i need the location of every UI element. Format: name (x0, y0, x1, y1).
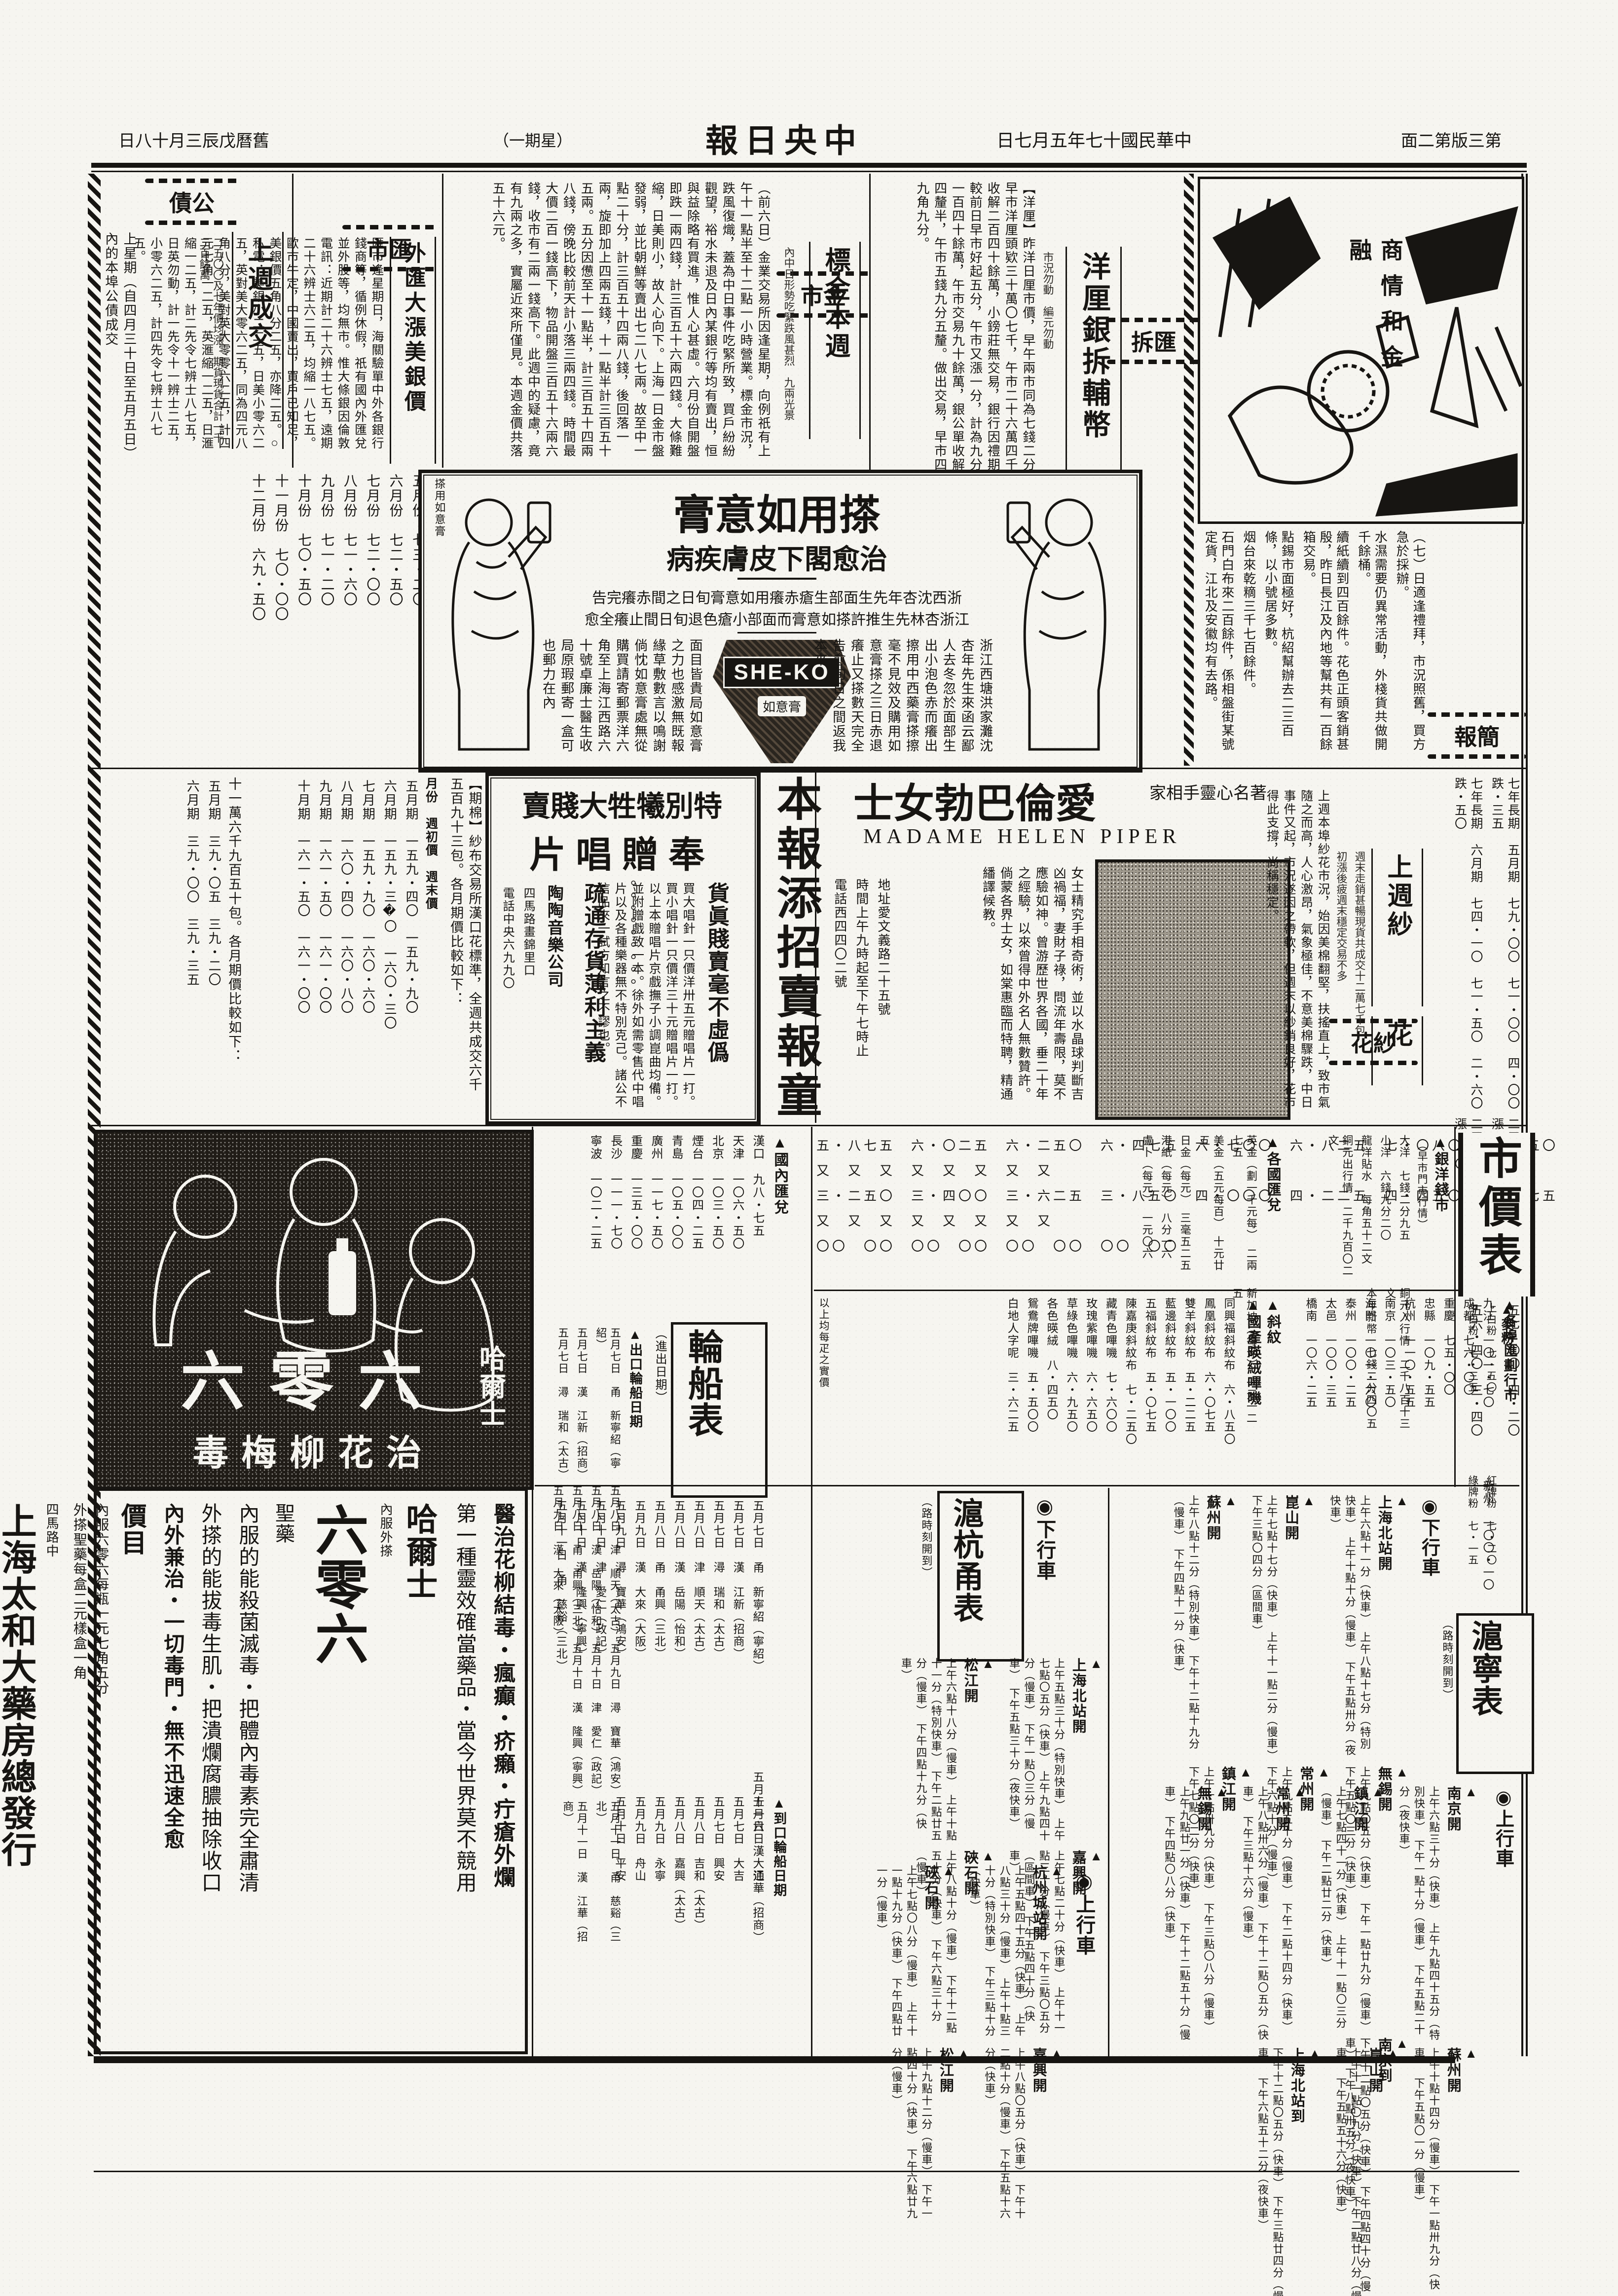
ships-header: 輪船表 (677, 1329, 726, 1477)
station-name: 硤石開 (920, 1865, 940, 2042)
ship-entry: 五月八日 漢 岳陽（怡和） (671, 1500, 686, 1766)
station-times: 上午六點三十分（快車） 上午九點四十五分（特別快車） 下午一點十分（慢車） 下午… (1396, 1786, 1441, 2042)
foreign-item: 港紙（每元） 八分一六 (1158, 1135, 1173, 1283)
qimian-row: 七月期 一五九・九〇 一六〇・六〇 (360, 779, 376, 1100)
huishi-body: 匯市逢星期日，海關驗單中外各銀行錢商等，循例休假，祇有國內外匯兌並外股等，均無市… (296, 237, 385, 459)
station-entry: ▲ 松江開 上午六點十八分（慢車） 上午十點十一分（特別快車） 下午二點廿五分（… (898, 1658, 994, 1845)
edition-label: 面二第版三第 (1401, 127, 1502, 151)
station-entry: ▲ 上海北站開 上午六點十一分（快車） 上午八點十七分（特別快車） 上午十點十分… (1327, 1495, 1408, 1761)
station-marker-icon: ▲ (1371, 1786, 1384, 2042)
station-times: 上午八點卅六分（慢車） 下午十二點〇五分（快車） 下午三點十六分（慢車） (1240, 1786, 1270, 2042)
section-header-gongzhai: 債公 (148, 179, 236, 225)
masthead-rule-thin (91, 171, 1527, 172)
footer-rule-thick (94, 2056, 1455, 2063)
silver-item: 龍洋貼水 每角五十二文 (1359, 1135, 1373, 1283)
shanghang-down-label: ◉下行車 (1031, 1495, 1058, 1623)
station-name: 無錫開 (1193, 1786, 1213, 2042)
flour-item: 紅牌粉 七・二〇 (1484, 1475, 1498, 1643)
taiho-brand-group: 哈爾士 內服外搽 六零六 聖藥 (270, 1503, 441, 1818)
paper-date: 日七月五年七十國民華中 (996, 126, 1192, 152)
station-entry: ▲ 南京開 上午六點三十分（快車） 上午九點四十五分（特別快車） 下午一點十分（… (1396, 1786, 1477, 2042)
silver-list: 大洋 七錢二分九五小洋 六錢九分二〇龍洋貼水 每角五十二文銅元出行情 二千九百〇… (1292, 1135, 1411, 1288)
qimian-table2: 五月期 三九・〇五 三九・二〇六月期 三九・〇〇 三九・三五 (148, 779, 222, 1115)
jianbao-list: （七）日適逢禮拜，市況照舊，買方急於採辦。水濕需要仍異常活動，外棧貨共做開千餘桶… (1200, 530, 1427, 762)
band-rule (91, 1125, 1527, 1126)
station-times: 上午八點〇五分（快車） 下午十二點十分（慢車） 下午五點十六分（快車） (982, 2047, 1027, 2225)
ship-entry: 五月八日 津 順天（太古） (691, 1500, 705, 1766)
record-sale-ad: 賣賤大牲犧別特 片唱贈奉 。。。。。。。。。 貨眞賤賣毫不虛僞 買大唱針一只價洋… (485, 773, 761, 1125)
masthead-rule-thick (91, 163, 1527, 168)
qimian-row2: 五月期 三九・〇五 三九・二〇 (205, 779, 222, 1100)
guonei-item: 漢口 九八・七五 (749, 1135, 765, 1297)
qimian-row: 八月期 一六〇・四〇 一六〇・八〇 (338, 779, 355, 1100)
cartoon-caption: 商情和金融 (1343, 238, 1406, 401)
jianbao-item: 續紙續到四百餘件。花色正頭客銷甚殷，昨日長江及內地等幫共有一百餘箱交易。 (1300, 530, 1350, 757)
gongzhai-left-note: 上星期（自四月三十日至五月五日）內的本埠公債成交 (101, 232, 138, 464)
sheko-left-column: 面目皆貴局如意膏之力也感激無既報緣草敷數言以鳴謝倘忱如意膏處無從購買請寄郵票洋六… (566, 638, 704, 764)
fabric-item: 藏青色嗶嘰 七・六〇〇 (1103, 1297, 1118, 1475)
station-name: 嘉興開 (1029, 2047, 1048, 2225)
ad-606-big-text: 六零六 (141, 1330, 486, 1423)
city-item: 忠縣 一〇九・五五 (1421, 1297, 1435, 1475)
ship-entry: 五月七日 大吉 (730, 1796, 745, 2042)
huning-down-label: ◉下行車 (1416, 1495, 1441, 1608)
taiho-price2: 外搽聖藥每盒二元樣盒一角 (69, 1503, 88, 2016)
station-entry: ▲ 杭州城站開 上午五點四十五分（快車） 上午八點三十分（慢車） 上午十點三十分… (967, 1865, 1063, 2042)
rate-grid: 五・八七五 六・〇二五 六・二五〇 六・四七五 六・七〇〇 六・八二五 七・〇八… (816, 1131, 1132, 1292)
ship-entry: 五月九日 潯 寶華（鴻安） (612, 1500, 627, 1766)
newspaper-page: 日八十月三辰戊曆舊 （一期星） 報日央中 日七月五年七十國民華中 面二第版三第 … (0, 0, 1618, 2296)
piper-latin-title: MADAME HELEN PIPER (863, 825, 1258, 849)
left-figure-illustration (430, 483, 558, 759)
station-name: 蘇州開 (1203, 1495, 1222, 1761)
headline-shahua: 上週紗 (1371, 849, 1423, 1006)
headline-jinshi-note: 內中日形勢吃緊跌風甚烈 九兩光景 (782, 247, 796, 444)
sheko-title: 膏意如用搽 (659, 482, 895, 542)
guonei-item: 廣州 一一七・五〇 (648, 1135, 663, 1297)
station-entry: ▲ 硤石開 上午七點〇八分（慢車） 上午十一點十九分（快車） 下午四點廿一分（慢… (874, 1865, 955, 2042)
lunar-date: 日八十月三辰戊曆舊 (118, 127, 269, 151)
taiho-firm-group: 四馬路中 上海太和大藥房總發行 各埠藥房均有出售 (0, 1503, 60, 2036)
ship-entry: 五月十一日 甬 慈谿（三北） (553, 1500, 568, 1766)
section-header-jianbao: 報簡 (1431, 712, 1523, 759)
ship-entry: 五月八日 嘉興（太古） (671, 1796, 686, 2042)
station-times: 上午六點十八分（慢車） 上午十點十一分（特別快車） 下午二點廿五分（慢車） 下午… (898, 1658, 958, 1845)
record-ad-title2: 片唱贈奉 (518, 825, 726, 878)
record-ad-firm: 陶陶音樂公司 (542, 885, 565, 1102)
flour-item: 綠牌粉 七・一五 (1466, 1475, 1479, 1643)
taiho-line1: 醫治花柳結毒・瘋癲・疥癩・疔瘡外爛 (487, 1503, 517, 2026)
jianbao-item: 石門白布來二百餘件，係相盤街某號定貨，江北及安徽均有去路。 (1202, 530, 1235, 757)
price-table-header-box: 市價表 (1458, 1133, 1535, 1296)
city-item: 海門 一〇一・六〇 (1362, 1297, 1377, 1475)
fabric-item: 草綠色嗶嘰 六・九五〇 (1064, 1297, 1078, 1475)
record-ad-body: 買大唱針一只價洋卅五元贈唱片一打。買小唱針一只價洋三十元贈唱片一打。以上本贈唱片… (642, 882, 696, 1109)
ad-606-side-text: 哈爾士 (472, 1345, 509, 1463)
station-marker-icon: ▲ (1050, 1865, 1063, 2042)
station-marker-icon: ▲ (1396, 1495, 1408, 1761)
station-times: 上午九點十二分（慢車） 下午一點四十分（快車） 下午六點廿九分（慢車） (888, 2047, 933, 2225)
piper-tel: 電話西四四〇二號 (831, 878, 848, 1110)
divider (1108, 1488, 1109, 2056)
qimian-row: 六月期 一五九・三�〇 一六〇・三〇 (381, 779, 398, 1100)
ships-header-note: （進出日期） (651, 1327, 667, 1480)
rate-row: 〇〇 〇〇 〇〇 〇〇 〇〇 〇〇 〇〇 〇〇 (816, 1236, 1132, 1255)
taiho-line5: 內外兼治・一切毒門・無不迅速全愈 (157, 1503, 186, 2026)
rule (535, 1485, 1519, 1486)
guonei-item: 北京 一〇三・五〇 (708, 1135, 724, 1297)
station-name: 上海北站開 (1068, 1658, 1088, 1845)
ships-in-list: 五月六日 大通五月七日 大吉五月七日 興安五月八日 吉和（太古）五月八日 嘉興（… (538, 1796, 765, 2052)
footer-rule-thin (94, 2171, 1519, 2172)
guonei-item: 寧波 一〇二・二五 (587, 1135, 602, 1297)
fabric-item: 鴛鴦牌嗶嘰 五・五〇〇 (1024, 1297, 1039, 1475)
jianbao-item: （七）日適逢禮拜，市況照舊，買方急於採辦。 (1393, 530, 1427, 757)
shahua-note1: 週末走銷甚暢現貨共成交十二萬七千包 (1353, 851, 1366, 1058)
fabric-item: 鳳凰斜紋布 六・〇七五 (1201, 1297, 1216, 1475)
silver-item: 銅元出行情 二千九百〇二文 (1325, 1135, 1354, 1283)
jinshi-body: （前六日）金業交易所因逢星期，向例祇有上午十一點半至十二點一小時營業。標金市況，… (446, 182, 772, 460)
guonei-item: 天津 一〇六・五〇 (729, 1135, 744, 1297)
shanghang-up-list: ▲ 杭州城站開 上午五點四十五分（快車） 上午八點三十分（慢車） 上午十點三十分… (816, 1865, 1063, 2052)
fabric-header1: ▲斜紋 (1263, 1297, 1283, 1475)
city-item: 杭州 一一〇・五五 (1401, 1297, 1416, 1475)
flour-item: 中白粉 七・三五 (1466, 1302, 1479, 1470)
taiho-firm-note1: 四馬路中 (42, 1503, 60, 1749)
divider (757, 770, 758, 1123)
ship-entry: 五月七日 興安 (710, 1796, 725, 2042)
city-item: 重慶 七五・〇〇 (1440, 1297, 1455, 1475)
guonei-item: 重慶 一三五・〇〇 (627, 1135, 643, 1297)
shanghang-down-list: ▲ 上海北站開 上午五點三十分（特別快車） 上午七點〇五分（快車） 上午九點四十… (816, 1658, 1103, 1855)
qimian-row: 九月期 一六一・五〇 一六一・〇〇 (316, 779, 333, 1100)
shahua-note2: 初漲後疲週末穩定交易不多 (1334, 851, 1348, 1058)
station-entry: ▲ 崑山開 上午七點十七分（快車） 上午十一點二分（慢車） 下午三點〇四分（區間… (1249, 1495, 1315, 1761)
ship-entry: 五月九日 永寧 (652, 1796, 666, 2042)
huning-up-label: ◉上行車 (1490, 1786, 1515, 1899)
gongzhai-month-item: 十月份 七〇・五〇 (294, 474, 312, 750)
newsboy-title: 本報添招賣報童 (764, 776, 826, 1121)
fabric-item: 雙羊斜紋布 五・二二五 (1181, 1297, 1196, 1475)
piper-photo (1095, 859, 1290, 1120)
paper-title: 報日央中 (705, 114, 863, 162)
headline-jinshi: 標金本週 (809, 242, 861, 439)
ship-entry: 五月九日 舟山 (632, 1796, 647, 2042)
silver-header: ▲銀洋錢市 (1431, 1135, 1450, 1283)
taiho-firm: 上海太和大藥房總發行 (0, 1503, 39, 2036)
record-ad-tel: 電話中央六九九〇 (499, 887, 515, 1104)
fabric-header2: ▲國產暎絨嗶嘰 (1243, 1297, 1263, 1475)
gongzhai-month-item: 十二月份 六九・五〇 (249, 474, 266, 750)
ship-entry: 五月七日 潯 瑞和（太古） (710, 1500, 725, 1766)
foreign-list: 英金（劃一千元每） 二兩七五美金（五元每百） 十元廿五日金（每元） 三毫五二五港… (1135, 1135, 1258, 1288)
right-figure-illustration (1000, 483, 1128, 759)
taiho-line2: 第一種靈效確當藥品・當今世界莫不競用 (449, 1503, 478, 2026)
station-marker-icon: ▲ (1090, 1658, 1103, 1845)
fabric-item: 陳嘉庚斜紋布 七・二五〇 (1123, 1297, 1138, 1475)
ship-entry: 五月七日 漢 江新（招商） (730, 1500, 745, 1766)
headline-shahua2: 花 (1371, 1016, 1423, 1085)
station-marker-icon: ▲ (1465, 1786, 1477, 2042)
fabric-item: 白地人字呢 三・六二五 (1004, 1297, 1019, 1475)
station-entry: ▲ 無錫開 上午九點廿一分（快車） 下午十二點五十分（慢車） 下午四點〇八分（快… (1162, 1786, 1228, 2042)
guonei-header: ▲國內匯兌 (770, 1135, 790, 1297)
qimian-intro2: 十一萬六千九百五十包。各月期價比較如下： (224, 777, 243, 1103)
shahua-body: 上週本埠紗花市況，始因美棉翻堅，扶搖直上，致市氣隨之而高，人心激昂，氣象極佳，不… (1296, 789, 1331, 1115)
rate-row: 又 又 又 又 又 又 又 又 (816, 1211, 1132, 1229)
station-marker-icon: ▲ (982, 1658, 994, 1845)
fabric-item: 玫瑰紫嗶嘰 六・六五〇 (1083, 1297, 1098, 1475)
gongzhai-month-item: 十一月份 七〇・〇〇 (271, 474, 289, 750)
record-ad-addr: 四馬路畫錦里口 (519, 887, 536, 1104)
guonei-list: 漢口 九八・七五天津 一〇六・五〇北京 一〇三・五〇煙台 一〇四・二五青島 一〇… (538, 1135, 765, 1307)
foreign-item: 美金（五元每百） 十元廿五 (1197, 1135, 1225, 1283)
gongzhai-month-item: 九月份 七一・二〇 (317, 474, 335, 750)
taiho-price-label: 價目 (113, 1503, 148, 1651)
station-marker-icon: ▲ (942, 1865, 955, 2042)
fabric-list: 同興福斜紋布 六・八五〇鳳凰斜紋布 六・〇七五雙羊斜紋布 五・二二五藍邊斜紋布 … (816, 1297, 1236, 1480)
divider (811, 1127, 812, 2056)
station-name: 南京開 (1443, 1786, 1463, 2042)
station-times: 上午七點四十一分（快車） 上午十一點〇三分（慢車） 下午二點廿二分（快車） (1318, 1786, 1348, 2042)
qimian-row: 五月期 一五九・四〇 一五九・九〇 (403, 779, 419, 1100)
station-entry: ▲ 鎮江開 上午七點四十一分（快車） 上午十一點〇三分（慢車） 下午二點廿二分（… (1318, 1786, 1384, 2042)
city-item: 橋南 一〇六・二五 (1303, 1297, 1318, 1475)
qimian-intro1: 【期棉】紗布交易所漢口花標準，全週共成交六千五百九十三包。各月期價比較如下： (446, 777, 483, 1103)
flour-item: 上白粉 七・五〇 (1484, 1302, 1498, 1470)
station-name: 鎮江開 (1350, 1786, 1369, 2042)
station-marker-icon: ▲ (1224, 1495, 1237, 1761)
silver-item: 大洋 七錢二分九五 (1397, 1135, 1411, 1283)
station-name: 崑山開 (1281, 1495, 1300, 1761)
divider (815, 770, 816, 1123)
fabric-item: 同興福斜紋布 六・八五〇 (1221, 1297, 1236, 1475)
foreign-item: 盧卜（每元） 一元〇六 (1140, 1135, 1154, 1283)
station-times: 上午五點四十五分（快車） 上午八點三十分（慢車） 上午十點三十分（特別快車） 下… (967, 1865, 1027, 2042)
gongzhai-months-list: 五月份 七三・二〇六月份 七二・五〇七月份 七二・〇〇八月份 七一・六〇九月份 … (101, 474, 427, 760)
city-item: 南京 一〇三・五〇 (1382, 1297, 1397, 1475)
station-marker-icon: ▲ (1050, 2047, 1063, 2225)
qimian-row: 十月期 一六一・五〇 一六一・〇〇 (294, 779, 311, 1100)
fabric-item: 五福斜紋布 五・〇七五 (1142, 1297, 1157, 1475)
station-name: 常州開 (1272, 1786, 1291, 2042)
ad-606-illustration: 六零六 哈爾士 毒梅柳花治 (94, 1130, 534, 1490)
bond-table: 七年長期 五月期 七九・〇〇 七一・〇〇 四・〇〇 跌・三五七年長期 六月期 七… (1416, 777, 1520, 1117)
sheko-subtitle: 病疾膚皮下閣愈治 (634, 537, 920, 577)
huning-header-note: （路時刻開到） (1439, 1618, 1454, 1756)
station-marker-icon: ▲ (957, 2047, 970, 2225)
rate-row: 五・八七五 六・〇二五 六・二五〇 六・四七五 六・七〇〇 六・八二五 七・〇八… (816, 1136, 1132, 1154)
taiho-brand-big: 六零六 (300, 1503, 373, 1818)
fabric-note1: 以上均每疋之實價 (816, 1297, 831, 1475)
ship-entry: 五月七日 甬 新寧紹（寧紹） (593, 1327, 622, 1480)
piper-addr: 地址愛文義路二十五號 (874, 878, 892, 1110)
foreign-item: 日金（每元） 三毫五二五 (1177, 1135, 1192, 1283)
huning-up-list: ▲ 南京開 上午六點三十分（快車） 上午九點四十五分（特別快車） 下午一點十分（… (1112, 1786, 1477, 2052)
fabric-item: 各色暎絨 八・四五〇 (1044, 1297, 1059, 1475)
sheko-par2: 愈全癢止間日旬退色瘡小部面而膏意如搽許推生先林杏浙江 (580, 607, 974, 629)
piper-hours: 時間上午九時起至下午七時止 (852, 878, 870, 1110)
ships-header-box: 輪船表 (671, 1322, 768, 1498)
taiho-price-group: 價目 內服六零六每瓶一元七角五分 外搽聖藥每盒二元樣盒一角 (69, 1503, 148, 2016)
record-ad-title: 賣賤大牲犧別特 (494, 783, 750, 824)
ships-out-list-b: 五月七日 甬 新寧紹（寧紹）五月七日 漢 江新（招商）五月七日 潯 瑞和（太古）… (538, 1500, 765, 1776)
station-times: 上午七點十七分（快車） 上午十一點二分（慢車） 下午三點〇四分（區間車） (1249, 1495, 1279, 1761)
ships-out-label: ▲出口輪船日期 (625, 1327, 644, 1485)
silver-item: 小洋 六錢九分二〇 (1378, 1135, 1392, 1283)
bond-row: 七年長期 六月期 七四・一〇 七一・五〇 二・六〇 跌・五〇 (1451, 777, 1483, 1112)
flour-list: 上白粉 七・五〇中白粉 七・三五紅牌粉 七・二〇綠牌粉 七・一五 (1458, 1302, 1498, 1475)
station-marker-icon: ▲ (1293, 1786, 1306, 2042)
bond-row: 七年長期 五月期 七九・〇〇 七一・〇〇 四・〇〇 跌・三五 (1488, 777, 1520, 1112)
gongzhai-month-item: 八月份 七一・六〇 (340, 474, 358, 750)
taiho-brand-tail: 聖藥 (270, 1503, 297, 1749)
band-rule (91, 768, 1527, 769)
sheko-tin-label: 如意膏 (758, 696, 806, 716)
taiho-line4: 外搽的能拔毒生肌・把潰爛腐膿抽除收口 (195, 1503, 223, 2026)
sheko-par1: 告完癢赤間之日旬膏意如用癢赤瘡生部面生先年杏沈西浙 (580, 586, 974, 607)
shanghang-header-box: 滬杭甬表 (937, 1491, 1024, 1662)
business-finance-cartoon: 商情和金融 (1198, 177, 1524, 524)
ships-in-label: ▲到口輪船日期 (770, 1796, 788, 1959)
ad-606-bottom-text: 毒梅柳花治 (156, 1424, 472, 1476)
gongzhai-month-item: 七月份 七二・〇〇 (363, 474, 381, 750)
ships-out-list-a: 五月七日 甬 新寧紹（寧紹）五月七日 漢 江新（招商）五月七日 潯 瑞和（太古）… (538, 1327, 622, 1485)
station-times: 上午八點十二分（特別快車） 下午十二點十九分（慢車） 下午四點十一分（快車） (1171, 1495, 1201, 1761)
taiho-price1: 內服六零六每瓶一元七角五分 (91, 1503, 110, 2016)
sheko-right-column: 浙江西塘洪家灘沈杏年先生來函云鄙人去冬忽於面部生出小泡色赤而癢出擦用中西藥膏搽擦… (856, 638, 994, 764)
ship-entry: 五月九日 漢 大來（大阪） (632, 1500, 647, 1766)
foreign-item: 英金（劃一千元每） 二兩七五 (1230, 1135, 1258, 1283)
ship-entry: 五月八日 甬 甬興（三北） (652, 1500, 666, 1766)
sheko-ad: 搽用如意膏 膏意如用搽 病疾膚皮下閣愈治 告完癢赤間之日旬膏意如用癢赤瘡生部面生… (418, 470, 1142, 773)
jianbao-item: 烟台來乾䊞三千七百餘件。 (1240, 530, 1257, 757)
record-ad-slogan2: 疏通存貨薄利主義 (578, 882, 608, 1104)
huning-down-list: ▲ 上海北站開 上午六點十一分（快車） 上午八點十七分（特別快車） 上午十點十分… (1112, 1495, 1408, 1771)
ship-entry: 五月十日 津 愛仁（政記） (592, 1500, 607, 1766)
rate-row: 三・二五〇 三・四〇〇 三・六二五 三・八五〇 四・〇〇〇 四・二二五 四・四五… (816, 1186, 1132, 1204)
ad-corner-stamp: 搽用如意膏 (432, 478, 446, 577)
piper-body: 女士精究手相奇術，並以水晶球判斷吉凶禍福，妻財子祿，問流年壽限，莫不應驗如神。曾… (903, 866, 1085, 1113)
ship-entry: 五月七日 甬 新寧紹（寧紹） (750, 1500, 765, 1766)
station-name: 松江開 (960, 1658, 980, 1845)
rule (814, 1290, 1519, 1291)
taiho-line3: 內服的能殺菌滅毒・把體內毒素完全肅清 (232, 1503, 261, 2026)
station-times: 上午九點廿一分（快車） 下午十二點五十分（慢車） 下午四點〇八分（快車） (1162, 1786, 1192, 2042)
piper-title: 士女勃巴倫愛 (853, 771, 1169, 829)
station-marker-icon: ▲ (1215, 1786, 1228, 2042)
gongzhai-month-item: 六月份 七二・五〇 (386, 474, 404, 750)
record-ad-slogan1: 貨眞賤賣毫不虛僞 (701, 882, 731, 1104)
fabric-item: 藍邊斜紋布 五・一〇〇 (1162, 1297, 1177, 1475)
station-times: 上午六點十一分（快車） 上午八點十七分（特別快車） 上午十點十分（慢車） 下午五… (1327, 1495, 1372, 1761)
guonei-item: 青島 一〇五・〇〇 (668, 1135, 683, 1297)
taiho-brand-note: 內服外搽 (376, 1503, 394, 1749)
city-item: 太邑 一〇〇・三五 (1323, 1297, 1337, 1475)
taiho-brand: 哈爾士 (397, 1503, 441, 1749)
qimian-row2: 六月期 三九・〇〇 三九・三五 (184, 779, 200, 1100)
station-name: 上海北站開 (1374, 1495, 1394, 1761)
station-entry: ▲ 常州開 上午八點卅六分（慢車） 下午十二點〇五分（快車） 下午三點十六分（慢… (1240, 1786, 1306, 2042)
station-name: 松江開 (935, 2047, 955, 2225)
shanghang-up-label: ◉上行車 (1070, 1870, 1098, 1998)
station-entry: ▲ 蘇州開 上午八點十二分（特別快車） 下午十二點十九分（慢車） 下午四點十一分… (1171, 1495, 1237, 1761)
jianbao-item: 水濕需要仍異常活動，外棧貨共做開千餘桶。 (1355, 530, 1389, 757)
station-times: 上午七點〇八分（慢車） 上午十一點十九分（快車） 下午四點廿一分（慢車） (874, 1865, 919, 2042)
sheko-divider (737, 578, 816, 580)
ship-entry: 五月十日 平安 (612, 1796, 627, 2042)
guonei-item: 煙台 一〇四・二五 (688, 1135, 703, 1297)
ship-entry: 五月八日 吉和（太古） (691, 1796, 705, 2042)
zigzag-divider (1184, 174, 1194, 766)
shanghang-header: 滬杭甬表 (944, 1497, 986, 1640)
sheko-divider2 (737, 632, 816, 633)
ship-entry: 五月六日 大通 (750, 1796, 765, 2042)
station-entry: ▲ 嘉興開 上午八點〇五分（快車） 下午十二點十分（慢車） 下午五點十六分（快車… (982, 2047, 1063, 2225)
city-item: 泰州 一〇〇・二五 (1342, 1297, 1357, 1475)
ship-entry: 五月七日 潯 瑞和（太古） (555, 1327, 570, 1480)
divider (442, 174, 443, 468)
station-marker-icon: ▲ (1302, 1495, 1315, 1761)
ship-entry: 五月七日 漢 江新（招商） (574, 1327, 588, 1480)
rate-row: 又 又 又 又 又 又 又 又 (816, 1161, 1132, 1179)
qimian-table1: 五月期 一五九・四〇 一五九・九〇六月期 一五九・三�〇 一六〇・三〇七月期 一… (257, 779, 419, 1115)
silver-note: （早市門市行情） (1415, 1140, 1429, 1283)
jianbao-item: 點錫市面極好，杭紹幫辦去二三百條，以小號居多數。 (1262, 530, 1295, 757)
station-entry: ▲ 松江開 上午九點十二分（慢車） 下午一點四十分（快車） 下午六點廿九分（慢車… (888, 2047, 970, 2225)
taiho-pharmacy-ad: 醫治花柳結毒・瘋癲・疥癩・疔瘡外爛 第一種靈效確當藥品・當今世界莫不競用 哈爾士… (94, 1488, 528, 2054)
station-times: 上午五點三十分（特別快車） 上午七點〇五分（快車） 上午九點四十分（慢車） 下午… (1006, 1658, 1066, 1845)
guonei-item: 長沙 一一一・七〇 (607, 1135, 623, 1297)
ship-entry: 五月十日 漢 隆興（寧興） (573, 1500, 588, 1766)
station-entry: ▲ 上海北站開 上午五點三十分（特別快車） 上午七點〇五分（快車） 上午九點四十… (1006, 1658, 1103, 1845)
foreign-header: ▲各國匯兌 (1263, 1135, 1283, 1283)
flour-label: ▲麥粉 (1498, 1302, 1515, 1470)
price-table-header: 市價表 (1466, 1136, 1526, 1284)
station-name: 杭州城站開 (1029, 1865, 1048, 2042)
headline-huishi: 外匯大漲美銀價 (390, 237, 436, 464)
shanghang-header-note: （路時刻開到） (919, 1496, 933, 1644)
qimian-cols-label: 月份 週初價 週末價 (422, 777, 439, 1093)
weekday: （一期星） (493, 128, 572, 151)
